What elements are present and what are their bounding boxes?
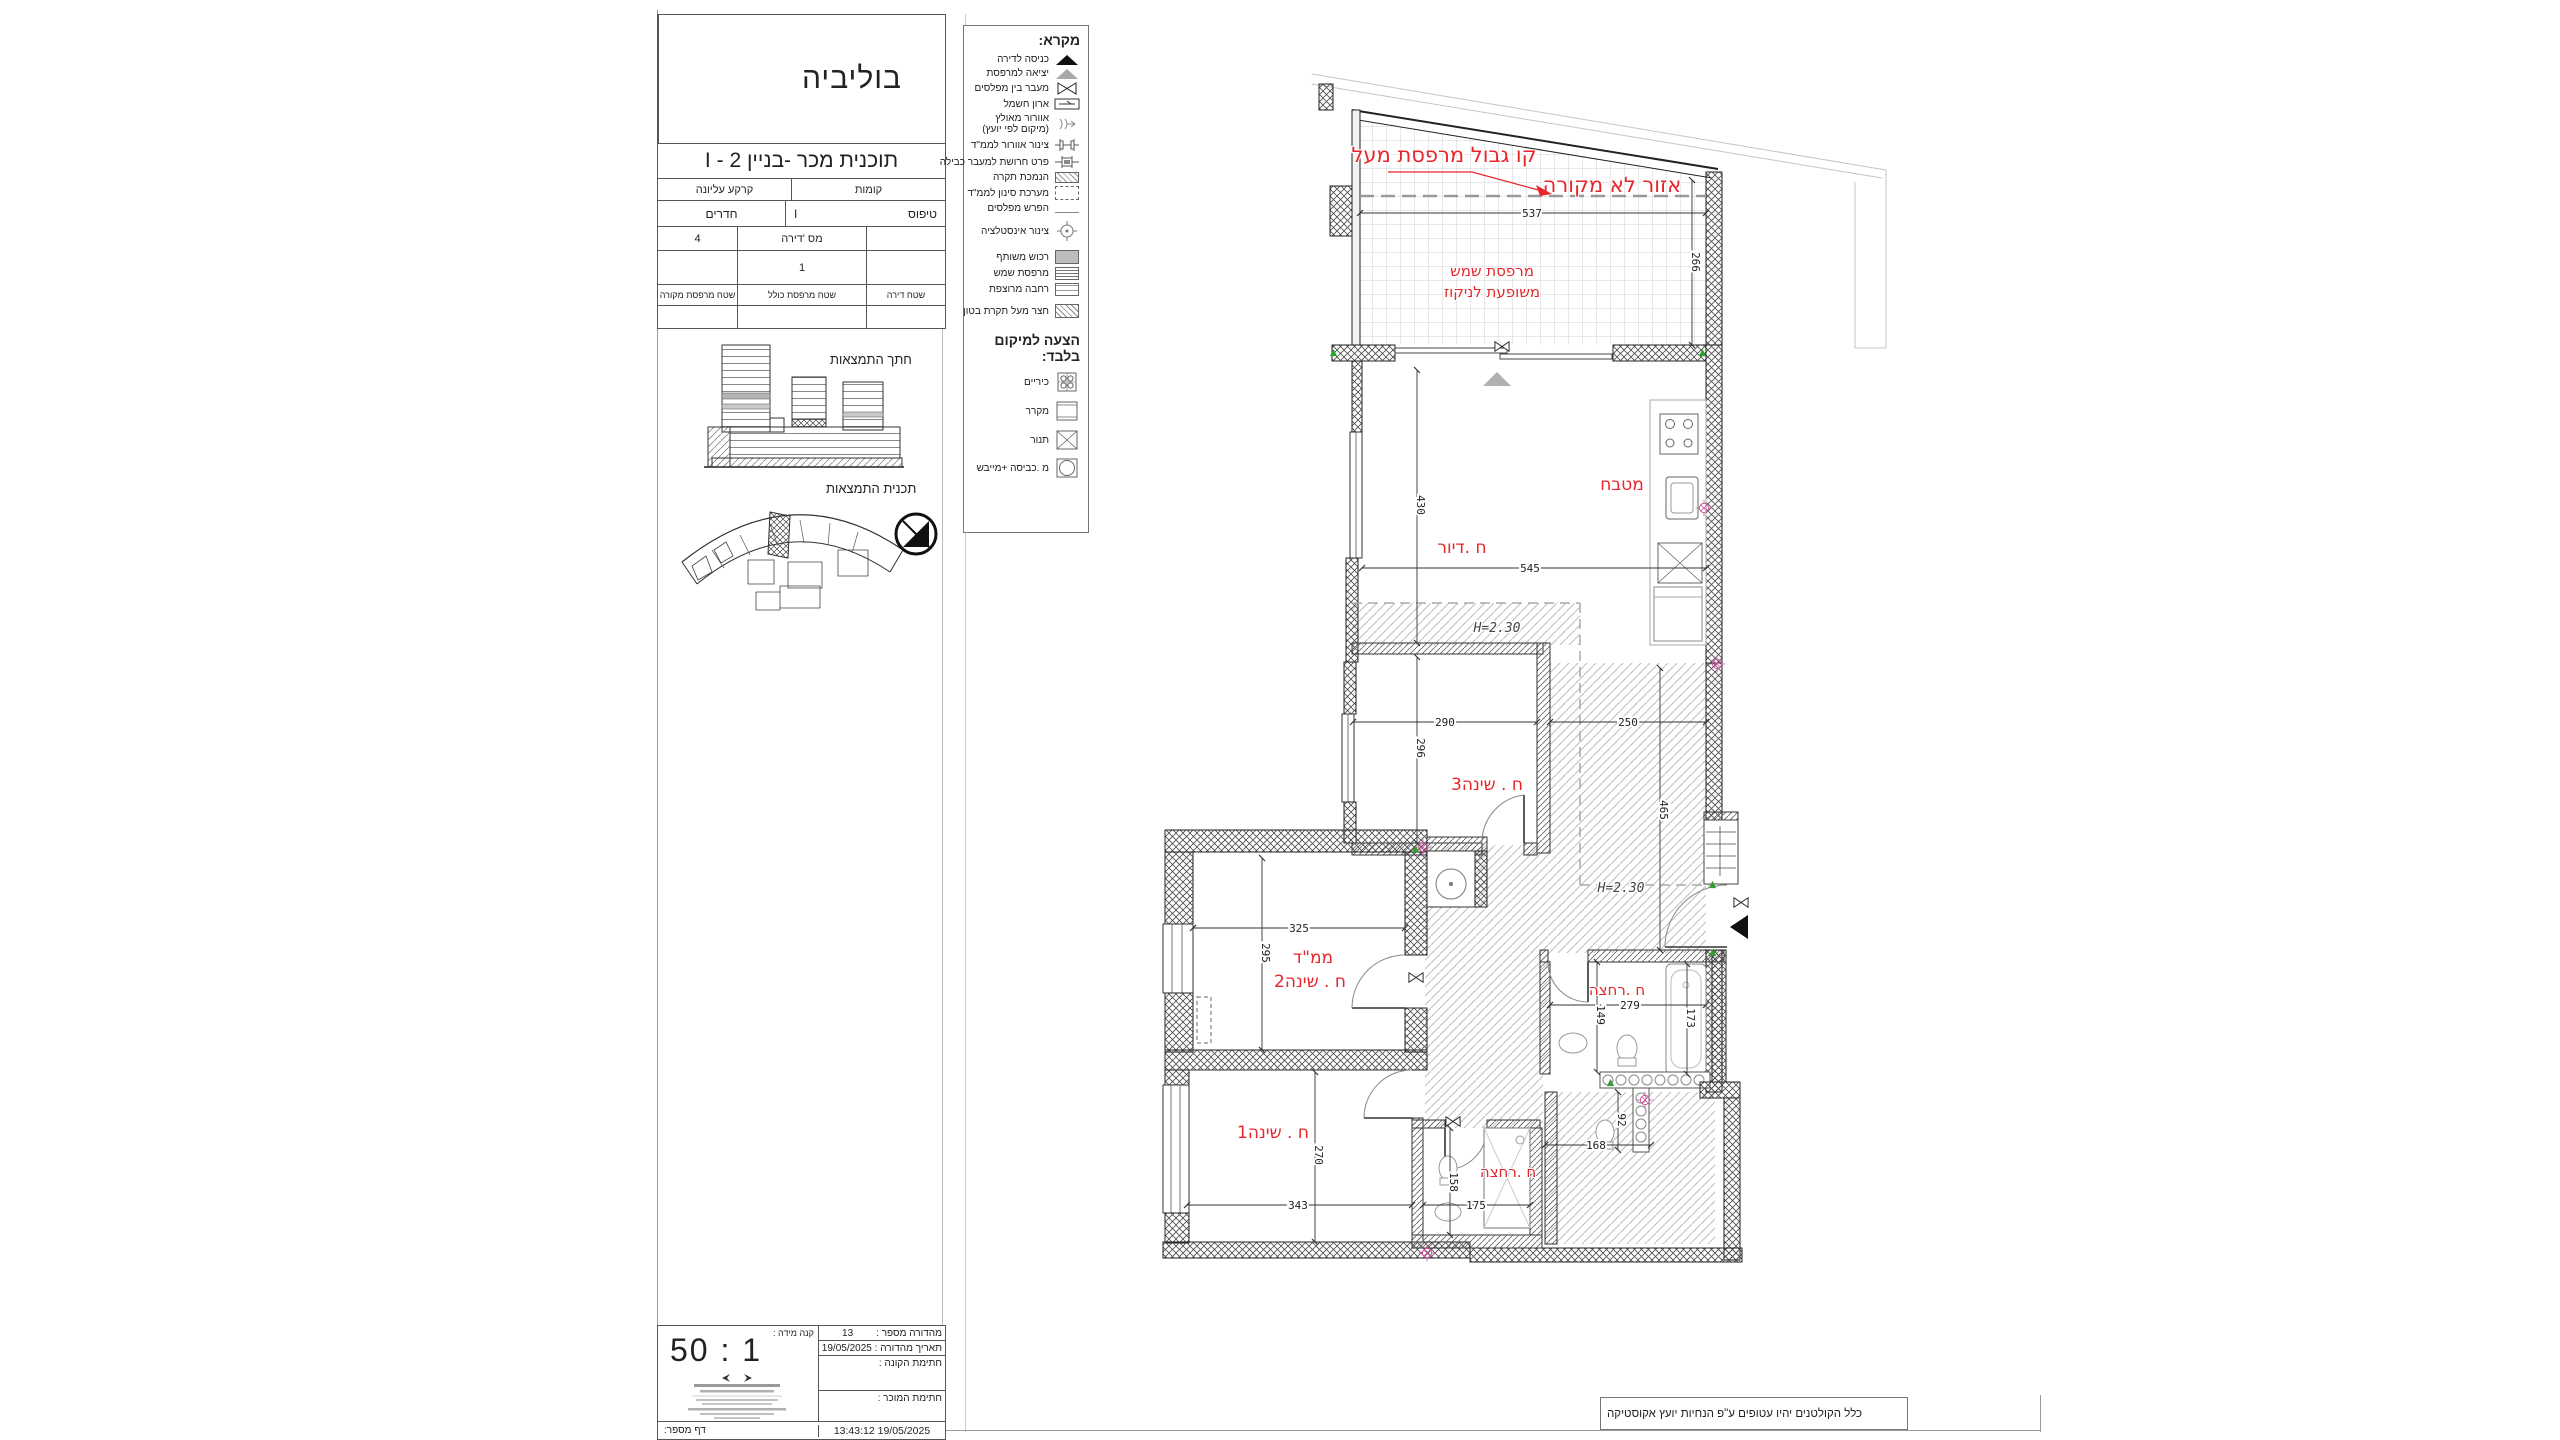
seller-signature-label: חתימת המוכר : — [819, 1391, 945, 1421]
svg-text:537: 537 — [1522, 207, 1542, 220]
svg-text:465: 465 — [1657, 800, 1670, 820]
legend-item-label: מעבר בין מפלסים — [975, 83, 1049, 94]
svg-text:H=2.30: H=2.30 — [1597, 881, 1645, 896]
uncovered-area-note: אזור לא מקורה — [1543, 173, 1682, 197]
plan-title: תוכנית מכר -בניין 2 - I — [658, 144, 945, 179]
drawing-sheet: בוליביה תוכנית מכר -בניין 2 - I קומות קר… — [0, 0, 2560, 1440]
mamad-filter-system-icon — [1197, 997, 1211, 1043]
sun-balcony-note: משופעת לניקוז — [1444, 283, 1540, 301]
logo-cell — [658, 15, 759, 143]
legend-suggestion-title: הצעה למיקום בלבד: — [964, 332, 1080, 364]
balcony-exit-arrow-icon — [1054, 69, 1080, 79]
apartment-number-label: מס 'דירה — [737, 227, 866, 250]
living-room-label: ח .דיור — [1437, 538, 1486, 558]
svg-text:290: 290 — [1435, 716, 1455, 729]
bedroom1-label: ח . שינה1 — [1237, 1123, 1309, 1143]
svg-text:270: 270 — [1312, 1145, 1325, 1165]
legend-item-label: מרפסת שמש — [993, 268, 1049, 279]
svg-text:250: 250 — [1618, 716, 1638, 729]
legend-item-label: פרט חרושת למעבר כבילה — [940, 157, 1049, 168]
edition-date-value: 19/05/2025 — [819, 1343, 875, 1354]
svg-text:296: 296 — [1414, 738, 1427, 758]
edition-date-label: תאריך מהדורה : — [875, 1343, 945, 1354]
svg-text:168: 168 — [1586, 1139, 1606, 1152]
paved-area-hatch-icon — [1054, 283, 1080, 296]
sun-balcony-hatch-icon — [1054, 267, 1080, 280]
forced-vent-icon — [1054, 117, 1080, 131]
acoustic-note: כלל הקולטנים יהיו עטופים ע"פ הנחיות יועץ… — [1600, 1397, 1908, 1430]
timestamp: 19/05/2025 13:43:12 — [818, 1425, 945, 1437]
scale-label: קנה מידה : — [773, 1328, 814, 1338]
legend-item-label: חצר מעל תקרת בטון — [963, 306, 1049, 317]
legend-item-label: הנמכת תקרה — [993, 172, 1049, 183]
legend-item-label: הפרש מפלסים — [987, 203, 1049, 214]
revision-block: מהדורה מספר : 13 תאריך מהדורה : 19/05/20… — [657, 1325, 946, 1440]
cooktop-icon — [1660, 414, 1698, 454]
entrance-arrow-icon — [1730, 915, 1748, 939]
stair-landing — [1704, 820, 1738, 884]
edition-value: 13 — [819, 1328, 876, 1339]
legend-item-label: מקרר — [1026, 406, 1049, 417]
plumbing-pipe-icon — [1054, 220, 1080, 242]
mamad-filter-system-icon — [1054, 186, 1080, 200]
oven-icon — [1658, 543, 1702, 583]
type-label: טיפוס — [908, 207, 937, 221]
svg-text:545: 545 — [1520, 562, 1540, 575]
svg-text:175: 175 — [1466, 1199, 1486, 1212]
fridge-icon — [1654, 587, 1702, 641]
kitchen-label: מטבח — [1600, 475, 1644, 495]
legend-item-label: רכוש משותף — [996, 252, 1049, 263]
legend-item-label: תנור — [1030, 435, 1049, 446]
level-passage-icon — [1054, 82, 1080, 95]
svg-text:149: 149 — [1594, 1005, 1607, 1025]
washer-dryer-icon — [1054, 458, 1080, 478]
bedroom3 — [1342, 643, 1550, 855]
cable-pass-detail-icon — [1054, 155, 1080, 169]
balcony-exit-arrow-icon — [1483, 372, 1511, 386]
type-value: I — [794, 207, 797, 221]
north-arrow-icon — [896, 514, 936, 554]
mamad-label: ממ"ד — [1293, 948, 1333, 968]
bathroom2 — [1412, 1117, 1542, 1248]
svg-text:343: 343 — [1288, 1199, 1308, 1212]
toilet — [1617, 1035, 1637, 1066]
legend-item-label: צינור אוורור לממ"ד — [971, 140, 1049, 151]
sun-balcony-note: מרפסת שמש — [1450, 262, 1534, 280]
legend-item-label: מערכת סינון לממ"ד — [967, 188, 1049, 199]
edition-label: מהדורה מספר : — [876, 1328, 945, 1339]
bathroom1-label: ח .רחצה — [1589, 981, 1645, 999]
svg-text:92: 92 — [1615, 1113, 1628, 1126]
highlighted-unit — [768, 512, 790, 558]
buyer-signature-label: חתימת הקונה : — [819, 1356, 945, 1391]
bedroom3-label: ח . שינה3 — [1451, 775, 1523, 795]
washer-closet — [1427, 837, 1487, 907]
cooktop-icon — [1054, 372, 1080, 392]
rooms-label: חדרים — [658, 201, 785, 226]
legend-title: מקרא: — [964, 32, 1080, 48]
fridge-icon — [1054, 400, 1080, 422]
svg-text:H=2.30: H=2.30 — [1473, 621, 1521, 636]
legend-item-label: רחבה מרוצפת — [989, 284, 1049, 295]
orientation-drawings — [657, 330, 957, 640]
apartment-number-value: 1 — [737, 251, 866, 284]
legend-item-label: אוורור מאולץ — [982, 113, 1049, 124]
level-passage-icon — [1734, 898, 1748, 907]
floors-label: קומות — [791, 179, 945, 200]
svg-text:430: 430 — [1414, 495, 1427, 515]
legend-item-label: צינור אינסטלציה — [981, 226, 1049, 237]
kitchen-fixtures — [1650, 400, 1706, 645]
legend-panel: מקרא: כניסה לדירה יציאה למרפסת מעבר בין … — [963, 25, 1089, 533]
area-apartment-label: שטח דירה — [866, 285, 945, 305]
electric-cabinet-icon — [1054, 98, 1080, 110]
svg-text:173: 173 — [1684, 1008, 1697, 1028]
entrance-arrow-icon — [1054, 55, 1080, 65]
sheet-right-rule — [2040, 1395, 2041, 1432]
orientation-section — [704, 345, 904, 467]
legend-item-label2: (מיקום לפי יועץ) — [982, 124, 1049, 135]
architect-stamp — [670, 1372, 804, 1428]
bathroom2-label: ח .רחצה — [1480, 1163, 1536, 1181]
svg-text:158: 158 — [1447, 1172, 1460, 1192]
svg-text:279: 279 — [1620, 999, 1640, 1012]
area-balcony-label: שטח מרפסת כולל — [737, 285, 866, 305]
shared-property-icon — [1054, 250, 1080, 264]
svg-text:295: 295 — [1259, 943, 1272, 963]
sliding-door-panel — [1500, 354, 1612, 359]
scale-value: 1 : 50 — [670, 1332, 762, 1369]
sink — [1435, 1203, 1461, 1221]
acoustic-note-text: כלל הקולטנים יהיו עטופים ע"פ הנחיות יועץ… — [1607, 1408, 1862, 1420]
level-passage-icon — [1409, 973, 1423, 982]
orientation-siteplan — [682, 512, 936, 610]
legend-item-label: ארון חשמל — [1003, 99, 1049, 110]
project-name: בוליביה — [759, 15, 945, 143]
legend-item-label: יציאה למרפסת — [986, 68, 1049, 79]
legend-item-label: כיריים — [1024, 377, 1049, 388]
svg-text:325: 325 — [1289, 922, 1309, 935]
bedroom1-window — [1163, 1085, 1189, 1213]
floor-plan: 537 266 430 545 290 296 250 465 325 295 … — [1100, 10, 1920, 1310]
balcony — [1319, 84, 1722, 386]
kitchen-sink — [1666, 477, 1698, 519]
balcony-boundary-note: קו גבול מרפסת מעל — [1351, 143, 1536, 167]
mamad-vent-pipe-icon — [1054, 138, 1080, 152]
oven-icon — [1054, 430, 1080, 450]
floors-value: קרקע עליונה — [658, 179, 791, 200]
rooms-value: 4 — [658, 227, 737, 250]
mamad-window — [1163, 924, 1193, 993]
lowered-ceiling-hatch-icon — [1054, 172, 1080, 183]
level-difference-icon — [1054, 204, 1080, 213]
title-block: בוליביה תוכנית מכר -בניין 2 - I קומות קר… — [657, 14, 946, 329]
svg-text:266: 266 — [1689, 252, 1702, 272]
sink — [1559, 1033, 1587, 1053]
area-covered-label: שטח מרפסת מקורה — [658, 285, 737, 305]
bedroom2-label: ח . שינה2 — [1274, 972, 1346, 992]
sliding-door-panel — [1395, 348, 1507, 353]
highlighted-floor — [792, 419, 826, 427]
title-top-row: בוליביה — [658, 15, 945, 144]
legend-item-label: כניסה לדירה — [997, 54, 1049, 65]
yard-over-concrete-hatch-icon — [1054, 304, 1080, 318]
legend-item-label: מ .כביסה +מייבש — [977, 463, 1049, 474]
